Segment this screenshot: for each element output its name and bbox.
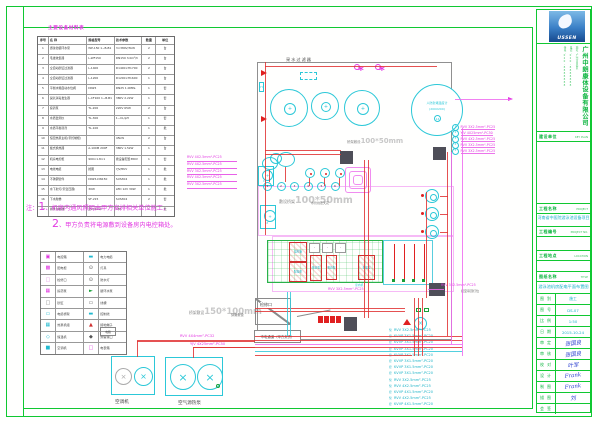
table-row: 1游泳池循环水泵 WP-150 1~B-B13×380V/3kW 2台: [38, 44, 174, 54]
title-block-row: 会 签: [537, 403, 590, 414]
table-row: 3全自动砂缸过滤器 L-1400D1400×H1700 2台: [38, 64, 174, 74]
legend-row: ▣ 电控箱 ▬ 电力电缆: [41, 252, 126, 262]
legend-symbol-icon: □: [84, 343, 99, 353]
table-row: 7投药泵 TL-200220V 65W 2台: [38, 105, 174, 115]
wire: [324, 178, 325, 186]
wire: [265, 62, 266, 235]
wire: [193, 347, 194, 358]
pump-symbol: [425, 189, 439, 203]
table-row: 9水质平衡药剂 TL-100 1批: [38, 125, 174, 135]
wire: [339, 178, 340, 186]
junction-dot-icon: [421, 230, 424, 233]
legend-row: □ 砂缸 ▭ 线槽: [41, 297, 126, 308]
meter-box: 电箱: [100, 327, 116, 336]
junction-dot-icon: [421, 194, 424, 197]
fan-icon: ×: [170, 364, 196, 390]
air-conditioner-unit: × ×: [111, 356, 155, 395]
cable-spec-row: 控KVVP 4X1.5mm²-PC20: [389, 401, 459, 407]
legend-row: ▦ 投药泵 ► 循环水泵: [41, 285, 126, 296]
equipment-table-body: 1游泳池循环水泵 WP-150 1~B-B13×380V/3kW 2台 2毛发收…: [38, 44, 174, 216]
junction-dot-icon: [421, 212, 424, 215]
drawing-sheet: 主要设备材料表 序号 名 称 规格型号 技术参数 数量 单位 1游泳池循环水泵 …: [0, 0, 600, 424]
terminal-strip: [318, 316, 342, 323]
cable-spec-label: RVV 4X2.5mm²-PC25: [187, 175, 237, 182]
heater-box: 恒温泵: [358, 255, 375, 280]
legend-symbol-icon: ▬: [84, 252, 99, 262]
table-row: 13电线电缆 按图YJV/RVV 1批: [38, 165, 174, 175]
sand-filter-symbol: +: [311, 92, 339, 120]
callout-number: 14: [434, 115, 441, 122]
wire: [414, 298, 415, 356]
title-block-row: 描 图 刘: [537, 392, 590, 403]
wire: [137, 341, 138, 357]
legend-symbol-icon: ▲: [84, 320, 99, 330]
fan-icon: ×: [134, 367, 153, 386]
heat-pump-label: 空气源热泵: [178, 400, 201, 406]
wire: [368, 160, 369, 318]
location-header: 工程地点LOCATION: [537, 250, 590, 260]
note-line-2: 2、甲方负责将电源敷到设备房内电控箱处。: [52, 217, 177, 230]
flower-icon: [335, 168, 345, 178]
notes: 注：1、机房内通风照明由甲方安排相关单位施工， 2、甲方负责将电源敷到设备房内电…: [26, 200, 241, 236]
legend-symbol-icon: ◇: [41, 332, 56, 342]
legend-row: ▭ 电缆桥架 ▬ 控制线: [41, 308, 126, 319]
hydrant-marker: H: [259, 82, 264, 92]
project-no-box: [537, 236, 590, 250]
legend-symbol-icon: ▣: [41, 252, 56, 262]
title-block-row: 校 对 叶军: [537, 359, 590, 370]
control-box: 电控箱: [289, 242, 307, 262]
keyplan-header: 建设单位KEY PLAN: [537, 131, 590, 141]
dashed-reference-box: [300, 72, 317, 80]
title-block-row: 制 图 Frank: [537, 381, 590, 392]
dosing-pump-box: 投药泵: [310, 255, 322, 281]
legend-symbol-icon: ▭: [41, 309, 56, 319]
wire: [422, 298, 423, 356]
legend-symbol-icon: ⊙: [84, 275, 99, 285]
wire: [462, 128, 463, 356]
wire: [255, 336, 462, 337]
legend-symbol-icon: ◆: [84, 332, 99, 342]
company-name: 广州中朗康体设备有限公司: [580, 46, 589, 129]
legend-row: ▩ 配电柜 ⊙ 灯具: [41, 262, 126, 273]
filter-area-label: 采水过滤器: [286, 57, 312, 63]
wire: [287, 292, 288, 336]
junction-box: [433, 147, 446, 160]
cable-coil-icon: [353, 175, 363, 185]
title-block-row: 设 计 Frank: [537, 370, 590, 381]
wire: [440, 196, 448, 197]
project-no-header: 工程编号PROJECT NO.: [537, 226, 590, 236]
grid-cells: ---: [309, 243, 346, 253]
info-rows: 图 别 施工 图 号 DS-07 比 例 1:50 日 期 2015-10-24…: [537, 293, 590, 414]
legend-row: □ 检修口 ⊙ 防水灯: [41, 274, 126, 285]
wire: [428, 289, 444, 290]
equipment-table-title: 主要设备材料表: [48, 25, 84, 31]
wire: [440, 232, 448, 233]
swan-icon: [557, 13, 574, 29]
dosing-pump-box: 投药泵: [326, 255, 337, 280]
terminal-dot-icon: [216, 384, 220, 388]
title-block: USSEN 广州中朗康体设备有限公司 地址：广州市白云区 电话：020-8888…: [536, 9, 591, 413]
wire: [418, 298, 419, 356]
sensor-box-icon: [424, 308, 429, 312]
callout-number: 4: [304, 182, 313, 191]
legend-row: ■ 空调机 □ 电表箱: [41, 342, 126, 353]
wire: [255, 344, 462, 345]
sand-filter-symbol: +: [270, 89, 308, 127]
wire: [451, 152, 452, 344]
wire: [364, 160, 365, 318]
wire: [255, 311, 405, 312]
legend-table: ▣ 电控箱 ▬ 电力电缆 ▩ 配电柜 ⊙ 灯具 □ 检修口 ⊙ 防水灯 ▦ 投药…: [40, 251, 127, 355]
legend-symbol-icon: □: [41, 298, 56, 308]
plant-number-row: 123456: [263, 182, 340, 191]
company-logo: USSEN: [549, 11, 585, 42]
wire: [265, 150, 341, 151]
equipment-table: 序号 名 称 规格型号 技术参数 数量 单位 1游泳池循环水泵 WP-150 1…: [37, 36, 175, 217]
heat-pump-unit: × ×: [165, 357, 223, 396]
left-cable-labels: RVV 4X2.5mm²-PC25RVV 4X2.5mm²-PC25RVV 3X…: [187, 155, 237, 189]
wire: [255, 355, 412, 356]
table-row: 15水下射灯(带变压器) 30WLED 12V 30W 1批: [38, 185, 174, 195]
pump-symbol: [425, 225, 439, 239]
legend-symbol-icon: ▭: [84, 298, 99, 308]
title-block-row: 日 期 2015-10-24: [537, 326, 590, 337]
table-row: 10恒温热泵主机(带控制柜) 45kW 2台: [38, 135, 174, 145]
grid-cable-label: RVV 3X2.5mm²-PC25: [328, 287, 364, 291]
tray-size-label: 桥架敷设150*100mm: [189, 299, 262, 318]
fan-icon: ×: [115, 368, 132, 385]
ground-symbol-icon: [403, 319, 411, 325]
project-name-header: 工程名称PROJECT: [537, 203, 590, 213]
tray-size-label: 桥架敷设100*50mm: [347, 128, 403, 147]
sand-filter-symbol: +: [344, 90, 380, 126]
table-row: 12机房电控柜 900×1.8×1按设备配置380V 1套: [38, 155, 174, 165]
wire: [265, 66, 437, 67]
legend-symbol-icon: ►: [84, 286, 99, 296]
pool-cable-note: 接至吊顶灯位: [461, 289, 479, 293]
wire: [269, 170, 270, 182]
wire: [426, 192, 427, 298]
callout-number: 2: [277, 182, 286, 191]
cable-spec-label: RVV 3X2.5mm²-PC25: [187, 169, 237, 176]
feed-arrow-icon: [261, 70, 267, 76]
control-box: 配电柜: [289, 262, 307, 282]
wire: [455, 99, 511, 100]
flower-icon: [305, 168, 315, 178]
wire: [290, 292, 291, 336]
keyplan-box: [537, 141, 590, 203]
tray-note: 穿管敷设: [231, 312, 244, 317]
location-box: [537, 260, 590, 271]
drawing-title-header: 图纸名称TITLE: [537, 271, 590, 281]
pump-symbol: [425, 207, 439, 221]
title-block-row: 审 定 张国良: [537, 337, 590, 348]
table-row: 8水质监测仪 TL-3001~CL/pH 1套: [38, 115, 174, 125]
wire: [285, 167, 286, 182]
legend-symbol-icon: □: [41, 275, 56, 285]
submersible-pump-icon: *: [377, 66, 389, 78]
equipment-table-header: 序号 名 称 规格型号 技术参数 数量 单位: [38, 37, 174, 44]
note-line-1: 注：1、机房内通风照明由甲方安排相关单位施工，: [26, 200, 169, 213]
drawing-title: 游泳池机房配电平面布置图: [537, 281, 590, 293]
wire: [255, 308, 405, 309]
legend-symbol-icon: ▦: [41, 320, 56, 330]
table-row: 2毛发收集器 L-WF150DN150 3.0m³/h 2台: [38, 54, 174, 64]
title-block-row: 审 核 张国良: [537, 348, 590, 359]
legend-symbol-icon: ▩: [41, 263, 56, 273]
project-name: 河南省中医院游泳池设备项目: [537, 213, 590, 226]
wire: [447, 152, 448, 336]
legend-symbol-icon: ▬: [84, 309, 99, 319]
legend-symbol-icon: ■: [41, 343, 56, 353]
callout-number: 3: [290, 182, 299, 191]
flower-icon: [320, 168, 330, 178]
table-row: 14不锈钢管件 DN25-DN150SUS304 1批: [38, 175, 174, 185]
title-block-row: 比 例 1:50: [537, 315, 590, 326]
title-block-row: 图 别 施工: [537, 293, 590, 304]
wire: [265, 154, 341, 155]
table-row: 4全自动砂缸过滤器 L-1200D1200×H1600 1台: [38, 74, 174, 84]
wire: [255, 351, 462, 352]
submersible-pump-icon: *: [356, 66, 368, 78]
junction-box: [340, 151, 353, 164]
cable-spec-label: RVV 4X2.5mm²-PC25: [187, 162, 237, 169]
legend-symbol-icon: ⊙: [84, 263, 99, 273]
feed-arrow-icon: [261, 116, 267, 122]
circuit-number: 5: [452, 148, 459, 155]
company-section: 广州中朗康体设备有限公司 地址：广州市白云区 电话：020-8888888 传真…: [537, 43, 590, 131]
junction-box: [344, 317, 357, 331]
air-conditioner-label: 空调机: [115, 399, 129, 405]
legend-symbol-icon: ▦: [41, 286, 56, 296]
table-row: 5平衡水箱自动水位阀 DN25DN25 1.0MPa 1套: [38, 84, 174, 94]
cable-spec-label: RVV 3X2.5mm²-PC25: [187, 182, 237, 189]
wire: [440, 214, 448, 215]
wire: [137, 341, 255, 342]
table-row: 11板式换热器 A-100M 200F380V 1.5kW 1台: [38, 145, 174, 155]
unit-cable-label: YJV 4X25mm²-PC50: [190, 342, 225, 346]
unit-cable-label: RVV 4X4mm²-PC32: [180, 334, 214, 338]
table-row: 6臭氧消毒发生器 L-CF100 1~B-B1380V 2.2kW 1套: [38, 94, 174, 104]
wire: [309, 178, 310, 186]
title-block-row: 图 号 DS-07: [537, 304, 590, 315]
cable-spec-label: RVV 4X2.5mm²-PC25: [187, 155, 237, 162]
